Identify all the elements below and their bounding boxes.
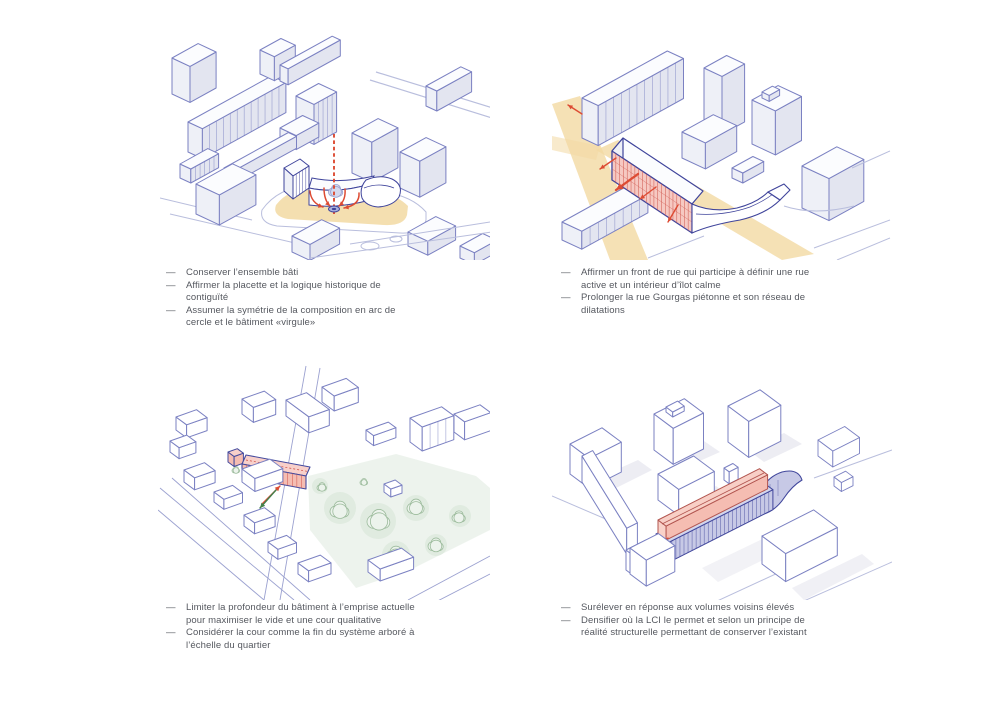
axonometric-diagram-placette — [160, 8, 490, 260]
figure-surelevation — [552, 358, 892, 600]
bullet-dash: — — [166, 267, 186, 280]
bullet-dash: — — [166, 602, 186, 627]
bullet-dash: — — [561, 292, 581, 317]
axonometric-diagram-cour-arboree — [158, 358, 490, 600]
bullet-dash: — — [166, 627, 186, 652]
caption-bullet: — Affirmer la placette et la logique his… — [166, 280, 426, 305]
caption-bullet: — Densifier où la LCI le permet et selon… — [561, 615, 821, 640]
caption-surelevation: — Surélever en réponse aux volumes voisi… — [561, 602, 821, 640]
axonometric-diagram-front-de-rue — [552, 8, 892, 260]
caption-bullet: — Assumer la symétrie de la composition … — [166, 305, 426, 330]
bullet-dash: — — [561, 615, 581, 640]
bullet-dash: — — [166, 305, 186, 330]
caption-bullet: — Considérer la cour comme la fin du sys… — [166, 627, 426, 652]
bullet-dash: — — [561, 602, 581, 615]
caption-bullet: — Limiter la profondeur du bâtiment à l’… — [166, 602, 426, 627]
figure-profondeur — [158, 358, 490, 600]
axonometric-diagram-surelevation — [552, 358, 892, 600]
caption-bullet: — Surélever en réponse aux volumes voisi… — [561, 602, 821, 615]
bullet-dash: — — [166, 280, 186, 305]
figure-placette — [160, 8, 490, 260]
caption-bullet: — Conserver l’ensemble bâti — [166, 267, 426, 280]
caption-profondeur: — Limiter la profondeur du bâtiment à l’… — [166, 602, 426, 652]
caption-bullet: — Prolonger la rue Gourgas piétonne et s… — [561, 292, 821, 317]
brochure-page: — Conserver l’ensemble bâti — Affirmer l… — [0, 0, 1000, 707]
caption-bullet: — Affirmer un front de rue qui participe… — [561, 267, 821, 292]
caption-placette: — Conserver l’ensemble bâti — Affirmer l… — [166, 267, 426, 330]
caption-front-de-rue: — Affirmer un front de rue qui participe… — [561, 267, 821, 317]
figure-front-de-rue — [552, 8, 892, 260]
bullet-dash: — — [561, 267, 581, 292]
